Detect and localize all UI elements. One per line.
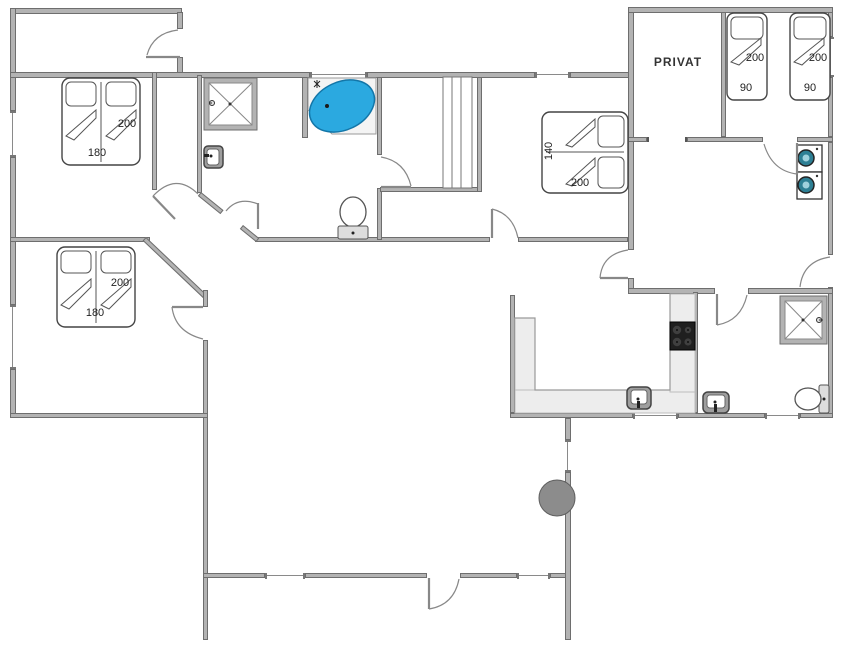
furniture-layer bbox=[0, 0, 847, 667]
wall-bottom-right-1 bbox=[510, 413, 633, 418]
wall-entrance-right-upper bbox=[177, 12, 183, 29]
wall-block-top bbox=[628, 7, 833, 13]
window-bedroom2-west bbox=[10, 305, 16, 369]
wall-living-bottom-2 bbox=[305, 573, 427, 578]
wall-right-mid-2 bbox=[828, 287, 833, 418]
corner-bathtub-icon bbox=[301, 70, 383, 142]
wall-bedroom2-bottom bbox=[10, 413, 208, 418]
wall-right-mid-1 bbox=[828, 142, 833, 255]
kitchen-counter bbox=[515, 294, 695, 413]
wall-top-3 bbox=[570, 72, 632, 78]
wall-bedroom1-east bbox=[152, 72, 157, 190]
door-bedroom3 bbox=[492, 209, 518, 238]
wall-utility-south-2 bbox=[748, 288, 833, 294]
wall-closet-bottom bbox=[380, 187, 482, 192]
room-label-privat: PRIVAT bbox=[654, 55, 702, 69]
window-bathroom2-south bbox=[765, 413, 800, 419]
bed2-width-label: 180 bbox=[86, 307, 104, 319]
wall-block-bottom-1 bbox=[628, 137, 647, 142]
wall-kitchen-west bbox=[510, 295, 515, 413]
wall-right-top-2 bbox=[828, 77, 833, 137]
wall-privat-divider bbox=[721, 12, 726, 137]
wall-top-1 bbox=[10, 72, 310, 78]
toilet2-icon bbox=[795, 385, 829, 413]
door-bedroom2 bbox=[172, 307, 203, 339]
shower-cabin1-icon bbox=[204, 78, 257, 130]
wall-left-1 bbox=[10, 8, 16, 111]
door-bathroom-closet bbox=[381, 157, 411, 187]
toilet1-icon bbox=[338, 197, 368, 239]
door-hall-vestibule bbox=[153, 183, 198, 219]
window-living-south-1 bbox=[265, 573, 305, 579]
wall-left-2 bbox=[10, 157, 16, 305]
wall-diagonal-vestibule-1 bbox=[198, 192, 224, 214]
window-bedroom1-west bbox=[10, 111, 16, 157]
wall-living-east-2 bbox=[565, 472, 571, 640]
wall-corridor-1 bbox=[255, 237, 490, 242]
window-single-room-east bbox=[828, 37, 834, 77]
washer-dryer-stack-icon bbox=[797, 145, 822, 199]
wall-corridor-2 bbox=[518, 237, 628, 242]
wall-right-top-1 bbox=[828, 12, 833, 37]
window-bathtub bbox=[310, 72, 367, 78]
wall-bedroom1-bottom bbox=[10, 237, 150, 242]
wall-bottom-right-2 bbox=[678, 413, 765, 418]
wall-bathroom-east-1 bbox=[377, 77, 382, 155]
wall-diagonal-bedroom2 bbox=[143, 237, 207, 298]
bed2-length-label: 200 bbox=[111, 277, 129, 289]
window-living-east bbox=[565, 440, 571, 472]
bed3-width-label: 140 bbox=[543, 142, 555, 160]
bathroom2-sink-icon bbox=[703, 392, 729, 413]
window-kitchen-south bbox=[633, 413, 678, 419]
window-living-south-2 bbox=[517, 573, 550, 579]
door-corridor-utility bbox=[600, 250, 628, 278]
door-terrace bbox=[429, 578, 459, 609]
wall-living-east-1 bbox=[565, 418, 571, 440]
wall-bathroom-east-2 bbox=[377, 188, 382, 240]
wall-kitchen-east bbox=[693, 292, 698, 413]
single2-width-label: 90 bbox=[804, 82, 816, 94]
floor-plan: PRIVAT 200 180 200 180 140 200 200 90 20… bbox=[0, 0, 847, 667]
bed1-length-label: 200 bbox=[118, 118, 136, 130]
kitchen-sink-icon bbox=[627, 387, 651, 409]
shower-cabin2-icon bbox=[780, 296, 827, 344]
single1-length-label: 200 bbox=[746, 52, 764, 64]
wall-block-bottom-2 bbox=[687, 137, 763, 142]
wall-bathroom-west bbox=[197, 75, 202, 193]
door-entrance bbox=[146, 30, 180, 57]
wall-living-west-1 bbox=[203, 290, 208, 307]
bed1-width-label: 180 bbox=[88, 147, 106, 159]
wall-living-west-2 bbox=[203, 340, 208, 640]
bed3-length-label: 200 bbox=[571, 177, 589, 189]
wall-closet-east bbox=[477, 77, 482, 192]
bathroom1-sink-icon bbox=[204, 146, 223, 168]
door-bathroom2 bbox=[717, 294, 747, 325]
wardrobe-icon bbox=[443, 77, 472, 188]
door-block-utility bbox=[764, 143, 797, 174]
wall-diagonal-vestibule-2 bbox=[240, 225, 259, 242]
wall-block-left-upper bbox=[628, 12, 634, 250]
door-privat-threshold bbox=[648, 137, 686, 142]
wall-top-2 bbox=[367, 72, 535, 78]
window-bedroom3 bbox=[535, 72, 570, 78]
single2-length-label: 200 bbox=[809, 52, 827, 64]
single1-width-label: 90 bbox=[740, 82, 752, 94]
wall-utility-south-1 bbox=[628, 288, 715, 294]
door-utility-outside bbox=[800, 257, 830, 287]
wall-living-bottom-3 bbox=[460, 573, 517, 578]
wall-bottom-right-3 bbox=[800, 413, 833, 418]
wall-entrance-top bbox=[10, 8, 182, 14]
wall-living-bottom-1 bbox=[203, 573, 265, 578]
wall-tub-nook bbox=[302, 77, 308, 138]
wall-left-3 bbox=[10, 369, 16, 418]
stove-cooktop-icon bbox=[670, 322, 695, 350]
